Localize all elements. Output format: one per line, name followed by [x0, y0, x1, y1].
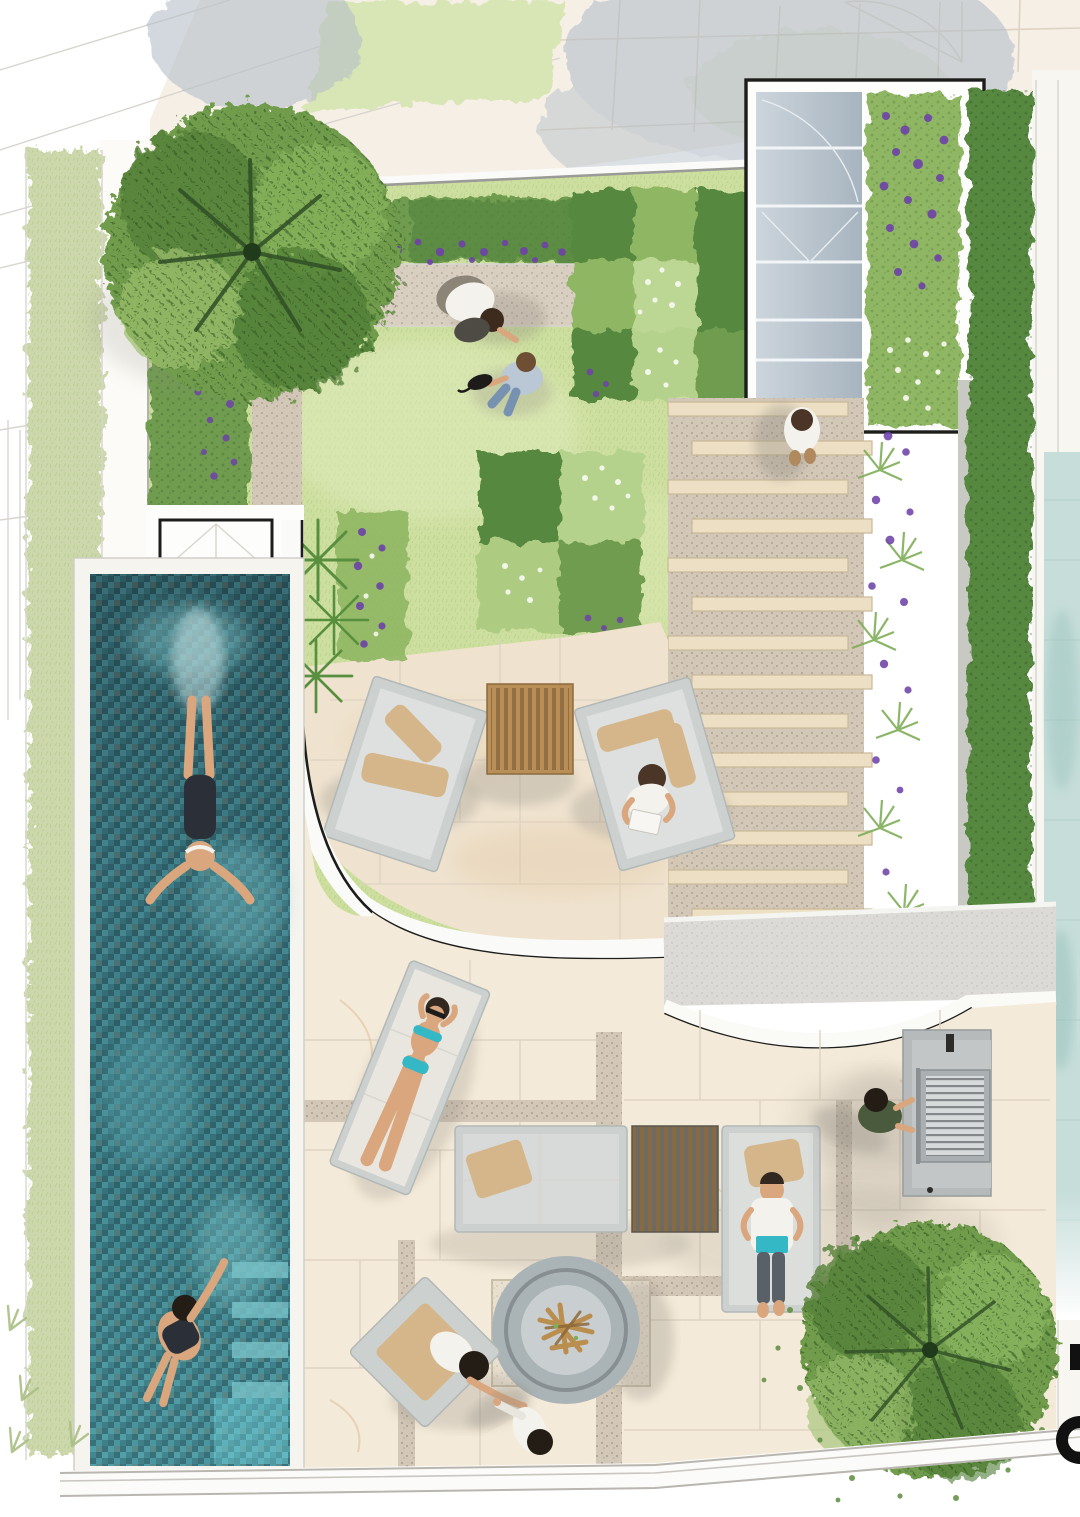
house-footprint — [746, 80, 984, 432]
roof-planter-purple — [868, 94, 960, 426]
checkerboard-bed-top — [572, 190, 758, 400]
glass-skylight-corridor — [756, 92, 862, 398]
black-square-fragment — [1070, 1344, 1080, 1370]
slatted-low-table — [632, 1126, 718, 1232]
site-plan — [0, 0, 1080, 1517]
slatted-coffee-table — [487, 684, 573, 774]
site-plan-canvas — [0, 0, 1080, 1517]
lap-pool — [74, 558, 304, 1480]
checkerboard-bed-mid — [478, 452, 642, 641]
